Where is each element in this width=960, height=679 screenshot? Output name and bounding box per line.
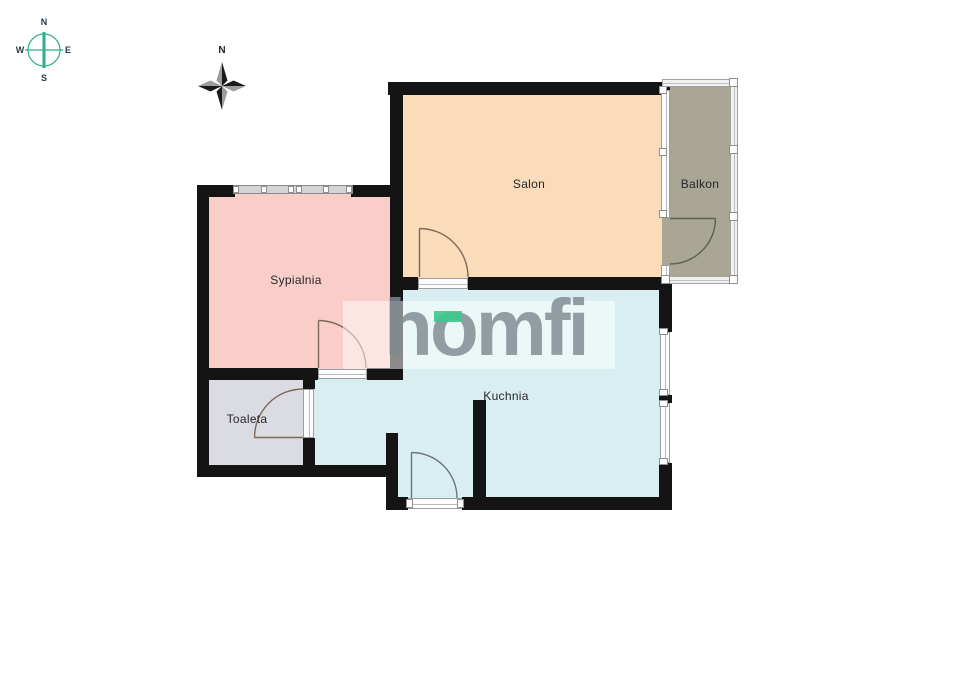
wall-bottom-right <box>462 497 672 510</box>
railing-post <box>729 275 738 284</box>
window-mullion-icon <box>288 186 294 193</box>
floorplan-canvas: homfi Salon Balkon Sypialnia Kuchnia Toa… <box>0 0 960 679</box>
window-mullion-icon <box>323 186 329 193</box>
window-handle-icon <box>659 458 668 465</box>
window-handle-icon <box>659 389 668 396</box>
room-label-salon: Salon <box>513 177 545 191</box>
wall-sypialnia-bottom-left <box>197 368 318 380</box>
wall-toaleta-bottom <box>197 465 398 477</box>
window-mullion-icon <box>296 186 302 193</box>
railing-post <box>729 78 738 87</box>
window-mullion-icon <box>233 186 239 193</box>
compass-n-label: N <box>41 17 48 27</box>
compass-w-label: W <box>16 45 25 55</box>
door-jamb-icon <box>457 499 464 508</box>
room-label-toaleta: Toaleta <box>227 412 268 426</box>
homfi-logo-text: homfi <box>384 288 587 368</box>
window-handle-icon <box>659 328 668 335</box>
window-mullion-icon <box>261 186 267 193</box>
wall-toaleta-right-top <box>303 368 315 389</box>
railing-post <box>661 275 670 284</box>
wall-salon-top <box>388 82 670 95</box>
wall-sypialnia-top-right <box>351 185 403 197</box>
window-handle-icon <box>659 400 668 407</box>
railing-post <box>659 148 667 156</box>
balcony-railing-right <box>730 79 738 284</box>
railing-post <box>659 210 667 218</box>
window-mullion-icon <box>346 186 352 193</box>
homfi-logo-macron-icon <box>434 311 462 322</box>
wall-kitchen-partition <box>473 400 486 502</box>
kuchnia-window-2 <box>660 403 670 463</box>
room-label-balkon: Balkon <box>681 177 720 191</box>
door-threshold-toaleta <box>303 389 314 438</box>
balcony-railing-bottom <box>662 276 738 284</box>
wall-entry-step <box>386 433 398 510</box>
balcony-railing-top <box>662 79 738 87</box>
door-threshold-sypialnia <box>318 369 367 379</box>
wall-left-outer <box>197 185 209 477</box>
railing-post <box>659 86 667 94</box>
railing-post <box>729 212 738 221</box>
wall-right-top <box>659 277 672 332</box>
north-arrow-label: N <box>218 45 225 56</box>
door-jamb-icon <box>406 499 413 508</box>
kuchnia-window-1 <box>660 332 670 395</box>
compass-s-label: S <box>41 73 47 83</box>
door-threshold-entrance <box>408 498 462 509</box>
room-label-sypialnia: Sypialnia <box>270 273 321 287</box>
compass-star-icon: N <box>195 42 249 112</box>
railing-post <box>729 145 738 154</box>
compass-rose-icon: N S W E <box>16 12 72 84</box>
room-label-kuchnia: Kuchnia <box>483 389 528 403</box>
compass-e-label: E <box>65 45 71 55</box>
